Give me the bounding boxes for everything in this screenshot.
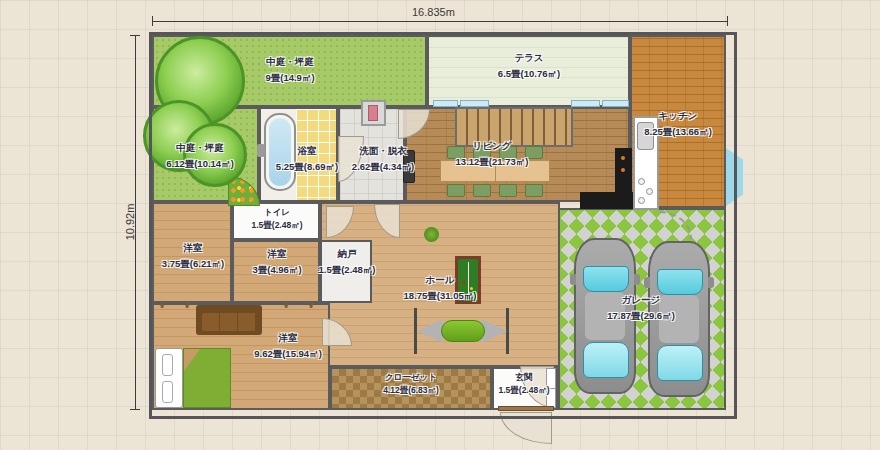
sofa-icon[interactable] xyxy=(196,305,262,335)
dimension-tick xyxy=(152,16,153,26)
room-label-courtyard-left: 中庭・坪庭 6.12畳(10.14㎡) xyxy=(166,140,234,172)
dimension-label-width: 16.835m xyxy=(412,6,455,18)
stove-burner xyxy=(638,197,645,204)
chair-icon[interactable] xyxy=(499,184,517,197)
blanket-fold xyxy=(184,349,200,371)
room-label-bedroom-c: 洋室 9.62畳(15.94㎡) xyxy=(254,330,322,362)
dimension-label-height: 10.92m xyxy=(124,192,136,252)
pillow-icon xyxy=(162,354,173,376)
stove-burner xyxy=(646,188,653,195)
windshield xyxy=(583,266,629,292)
room-label-closet: クローゼット 4.12畳(6.83㎡) xyxy=(383,371,439,397)
washing-machine-icon[interactable] xyxy=(361,100,386,126)
window[interactable] xyxy=(571,100,600,107)
plant-icon[interactable] xyxy=(424,227,439,242)
hammock-net xyxy=(417,319,443,343)
room-label-living: リビング 13.12畳(21.73㎡) xyxy=(456,138,529,170)
window[interactable] xyxy=(433,100,458,107)
chair-icon[interactable] xyxy=(447,184,465,197)
room-label-terrace: テラス 6.5畳(10.76㎡) xyxy=(498,50,560,82)
rear-window xyxy=(657,345,703,381)
bed-icon[interactable] xyxy=(183,348,231,408)
chair-icon[interactable] xyxy=(525,184,543,197)
washer-door xyxy=(368,105,378,121)
bed-headboard[interactable] xyxy=(155,348,183,408)
chair-icon[interactable] xyxy=(473,184,491,197)
room-label-bedroom-a: 洋室 3.75畳(6.21㎡) xyxy=(162,240,224,272)
room-label-hall: ホール 18.75畳(31.05㎡) xyxy=(404,272,477,304)
faucet-icon xyxy=(257,144,265,157)
entrance-door[interactable] xyxy=(498,406,554,411)
burner-dot xyxy=(621,168,625,172)
mirror xyxy=(708,277,714,288)
room-label-bedroom-b: 洋室 3畳(4.96㎡) xyxy=(252,246,301,278)
room-label-courtyard-top: 中庭・坪庭 9畳(14.9㎡) xyxy=(265,54,314,86)
dimension-line-top xyxy=(152,21,728,22)
kitchen-counter-icon[interactable] xyxy=(615,148,632,196)
room-label-storage: 納戸 1.5畳(2.48㎡) xyxy=(318,246,375,278)
room-label-bathroom: 浴室 5.25畳(8.69㎡) xyxy=(276,143,338,175)
door-swing-entrance-out[interactable] xyxy=(500,412,552,444)
mirror xyxy=(570,274,576,285)
room-label-washroom: 洗面・脱衣 2.62畳(4.34㎡) xyxy=(352,143,414,175)
dimension-tick xyxy=(130,409,140,410)
window-marks-icon: ∨ ∨ xyxy=(158,300,198,310)
sofa-seat xyxy=(202,313,256,331)
mirror xyxy=(634,274,640,285)
room-label-kitchen: キッチン 8.25畳(13.66㎡) xyxy=(644,108,712,140)
dimension-tick xyxy=(130,35,140,36)
window[interactable] xyxy=(602,100,629,107)
stove-burner xyxy=(638,178,645,185)
pillow-icon xyxy=(162,381,173,403)
dimension-tick xyxy=(727,16,728,26)
window-marks-icon: ∨ ∨ xyxy=(282,300,322,310)
floorplan-canvas: 16.835m 10.92m ∨ ∨ ∨ ∨ xyxy=(0,0,880,450)
room-label-entrance: 玄関 1.5畳(2.48㎡) xyxy=(498,371,549,397)
room-label-toilet: トイレ 1.5畳(2.48㎡) xyxy=(251,206,302,232)
kitchen-counter-icon[interactable] xyxy=(580,192,636,209)
window[interactable] xyxy=(460,100,489,107)
burner-dot xyxy=(621,156,625,160)
bay-window[interactable] xyxy=(726,148,743,206)
hammock-icon[interactable] xyxy=(441,320,485,342)
mirror xyxy=(644,277,650,288)
rear-window xyxy=(583,342,629,378)
room-label-garage: ガレージ 17.87畳(29.6㎡) xyxy=(607,292,675,324)
